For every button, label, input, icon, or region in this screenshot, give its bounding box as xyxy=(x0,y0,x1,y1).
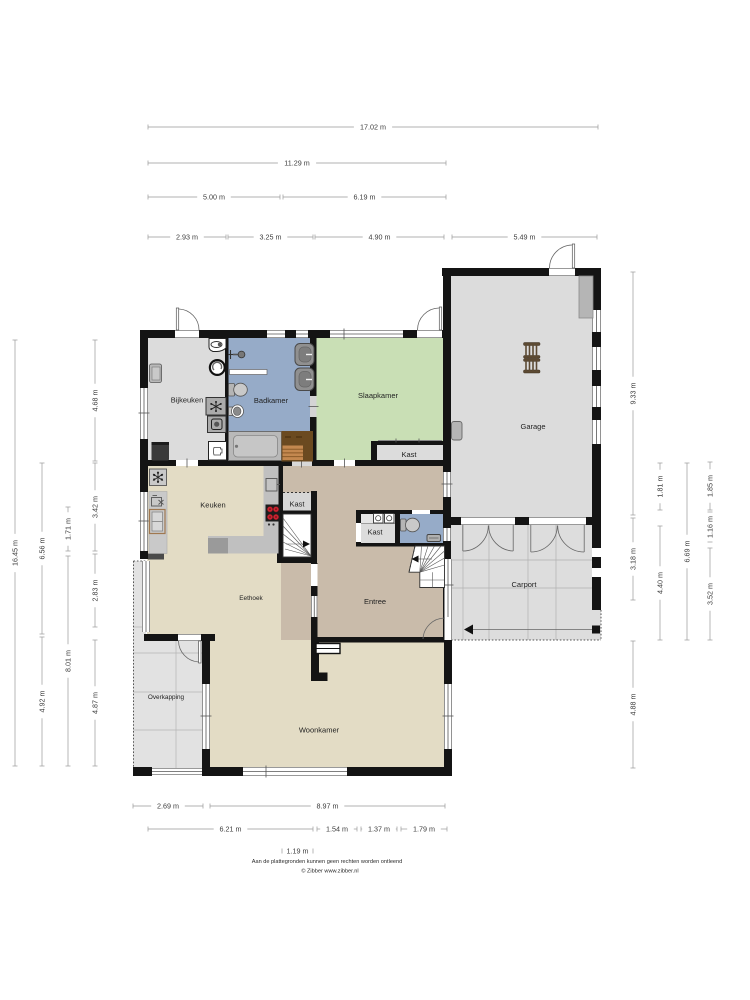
svg-text:Kast: Kast xyxy=(289,500,305,509)
svg-text:3.25 m: 3.25 m xyxy=(260,233,282,242)
svg-text:© Zibber www.zibber.nl: © Zibber www.zibber.nl xyxy=(301,868,358,875)
svg-text:5.00 m: 5.00 m xyxy=(203,193,225,202)
svg-text:1.19 m: 1.19 m xyxy=(287,847,309,856)
svg-text:3.52 m: 3.52 m xyxy=(706,583,715,605)
svg-text:5.49 m: 5.49 m xyxy=(514,233,536,242)
svg-text:Entree: Entree xyxy=(364,597,386,606)
svg-text:4.92 m: 4.92 m xyxy=(38,691,47,713)
svg-text:16.45 m: 16.45 m xyxy=(11,540,20,566)
svg-text:2.93 m: 2.93 m xyxy=(176,233,198,242)
svg-text:Carport: Carport xyxy=(511,580,537,589)
svg-text:Woonkamer: Woonkamer xyxy=(299,726,340,735)
svg-text:9.33 m: 9.33 m xyxy=(629,383,638,405)
svg-text:Slaapkamer: Slaapkamer xyxy=(358,391,399,400)
svg-text:1.16 m: 1.16 m xyxy=(706,516,715,538)
svg-text:Aan de plattegronden kunnen ge: Aan de plattegronden kunnen geen rechten… xyxy=(252,859,403,865)
svg-text:1.81 m: 1.81 m xyxy=(656,476,665,498)
svg-text:6.56 m: 6.56 m xyxy=(38,538,47,560)
svg-text:4.68 m: 4.68 m xyxy=(91,390,100,412)
svg-text:6.69 m: 6.69 m xyxy=(683,541,692,563)
svg-text:6.21 m: 6.21 m xyxy=(220,825,242,834)
svg-text:Overkapping: Overkapping xyxy=(148,694,185,701)
svg-text:6.19 m: 6.19 m xyxy=(354,193,376,202)
svg-text:Badkamer: Badkamer xyxy=(254,396,289,405)
svg-text:Kast: Kast xyxy=(367,528,383,537)
svg-text:Garage: Garage xyxy=(520,422,545,431)
svg-text:1.85 m: 1.85 m xyxy=(706,475,715,497)
svg-text:Kast: Kast xyxy=(401,450,417,459)
svg-text:2.83 m: 2.83 m xyxy=(91,580,100,602)
svg-text:4.88 m: 4.88 m xyxy=(629,694,638,716)
svg-text:1.37 m: 1.37 m xyxy=(368,825,390,834)
svg-text:1.71 m: 1.71 m xyxy=(64,518,73,540)
svg-text:1.54 m: 1.54 m xyxy=(326,825,348,834)
svg-text:1.79 m: 1.79 m xyxy=(413,825,435,834)
svg-text:4.90 m: 4.90 m xyxy=(369,233,391,242)
svg-text:17.02 m: 17.02 m xyxy=(360,123,386,132)
svg-text:Keuken: Keuken xyxy=(200,501,225,510)
svg-text:4.40 m: 4.40 m xyxy=(656,572,665,594)
svg-text:2.69 m: 2.69 m xyxy=(157,802,179,811)
svg-text:8.97 m: 8.97 m xyxy=(317,802,339,811)
svg-text:Bijkeuken: Bijkeuken xyxy=(171,396,204,405)
svg-text:3.42 m: 3.42 m xyxy=(91,496,100,518)
svg-text:11.29 m: 11.29 m xyxy=(284,159,309,168)
svg-text:4.87 m: 4.87 m xyxy=(91,692,100,714)
svg-text:Eethoek: Eethoek xyxy=(239,595,263,602)
svg-text:8.01 m: 8.01 m xyxy=(64,650,73,672)
svg-text:3.18 m: 3.18 m xyxy=(629,548,638,570)
